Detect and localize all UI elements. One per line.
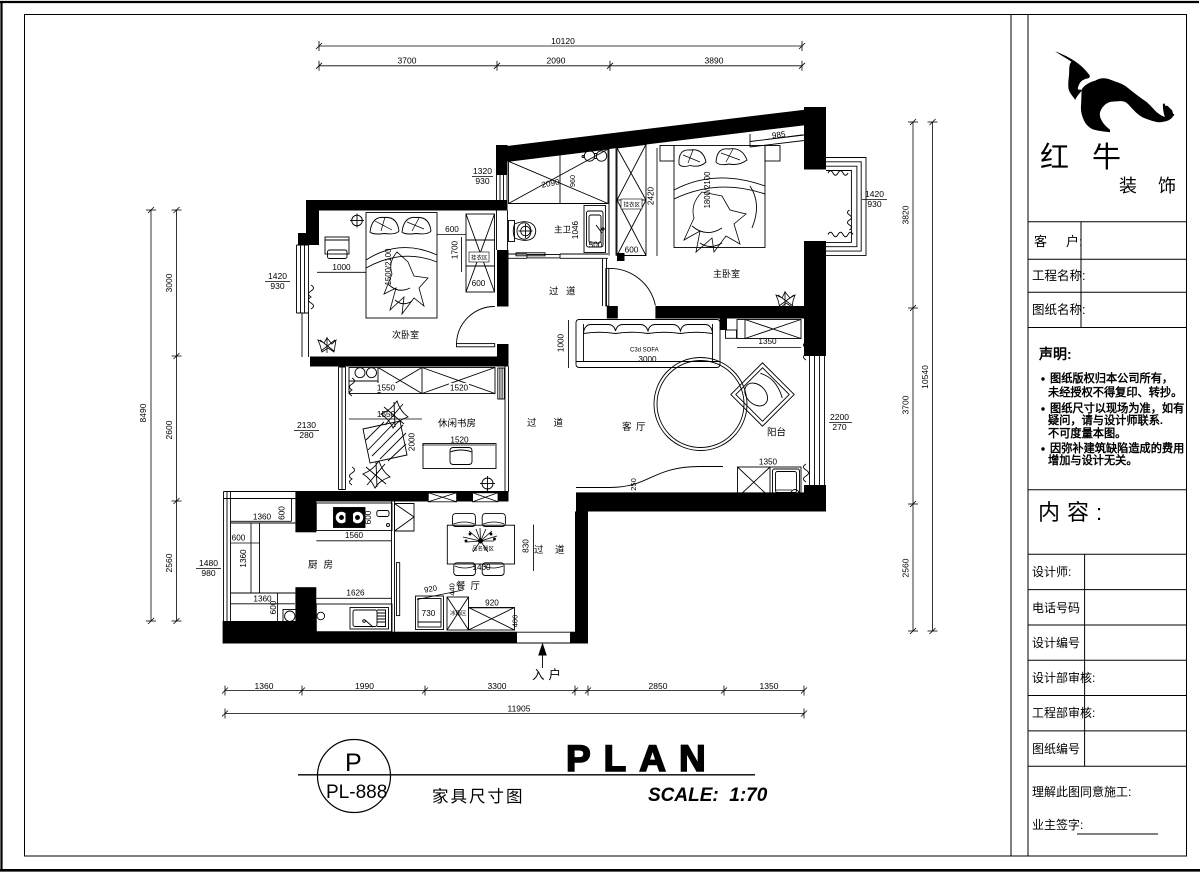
svg-text:2560: 2560 [164, 553, 174, 572]
svg-text:1420: 1420 [865, 189, 884, 199]
svg-text:1480: 1480 [199, 558, 218, 568]
svg-text:客厅: 客厅 [622, 421, 650, 433]
svg-text:工程名称:: 工程名称: [1032, 268, 1085, 283]
svg-text:1990: 1990 [355, 681, 374, 691]
svg-text:休闲书房: 休闲书房 [438, 418, 476, 430]
svg-text:2560: 2560 [901, 558, 911, 577]
svg-text:1360: 1360 [253, 513, 272, 522]
svg-text:980: 980 [201, 568, 215, 578]
svg-text:品名餐区: 品名餐区 [472, 545, 495, 553]
svg-text:主卫: 主卫 [554, 225, 572, 235]
svg-text:过道: 过道 [534, 544, 576, 556]
svg-text:设计师:: 设计师: [1032, 565, 1071, 579]
svg-text:C3d SOFA: C3d SOFA [630, 348, 659, 354]
svg-text:600: 600 [269, 600, 278, 614]
svg-text:PLAN: PLAN [566, 738, 719, 779]
svg-text:2090: 2090 [541, 177, 561, 189]
svg-text:增加与设计无关。: 增加与设计无关。 [1048, 453, 1138, 467]
svg-text:挂衣区: 挂衣区 [624, 201, 641, 209]
svg-text:1400: 1400 [472, 563, 491, 572]
svg-text:设计部审核:: 设计部审核: [1032, 670, 1095, 685]
svg-text:理解此图同意施工:: 理解此图同意施工: [1032, 784, 1131, 799]
svg-text:600: 600 [232, 534, 246, 543]
svg-text:过道: 过道 [549, 286, 583, 298]
svg-text:1350: 1350 [759, 458, 778, 467]
svg-text:1800/2100: 1800/2100 [703, 171, 712, 209]
svg-text:1520: 1520 [450, 384, 469, 393]
svg-text:阳台: 阳台 [767, 427, 786, 439]
svg-text:1500/2100: 1500/2100 [384, 248, 393, 286]
svg-text:830: 830 [522, 539, 531, 553]
svg-text:图纸编号: 图纸编号 [1032, 741, 1080, 756]
svg-text:1550: 1550 [377, 410, 396, 419]
svg-text:440: 440 [448, 583, 457, 596]
svg-text:2200: 2200 [830, 412, 849, 422]
svg-text:920: 920 [485, 599, 499, 608]
svg-text:1046: 1046 [571, 220, 580, 239]
svg-text:270: 270 [832, 422, 846, 432]
svg-text:3000: 3000 [164, 273, 174, 292]
svg-text:不可度量本图。: 不可度量本图。 [1048, 426, 1126, 440]
svg-text:1420: 1420 [268, 271, 287, 281]
svg-text:2000: 2000 [408, 432, 417, 451]
svg-text:声明:: 声明: [1038, 346, 1072, 362]
svg-text:930: 930 [270, 281, 284, 291]
svg-text:2090: 2090 [547, 56, 566, 66]
svg-text:装饰: 装饰 [1119, 176, 1197, 196]
svg-text:250: 250 [629, 478, 638, 491]
svg-text:1000: 1000 [332, 263, 351, 272]
svg-text:1360: 1360 [255, 681, 274, 691]
svg-text:8490: 8490 [138, 403, 148, 422]
svg-text:2130: 2130 [297, 420, 316, 430]
svg-text:PL-888: PL-888 [326, 782, 387, 803]
svg-text:500: 500 [589, 241, 603, 250]
svg-text:P: P [345, 749, 362, 777]
svg-text:过道: 过道 [527, 417, 580, 429]
svg-text:1520: 1520 [450, 436, 469, 445]
svg-text:930: 930 [475, 176, 489, 186]
svg-text:2600: 2600 [164, 420, 174, 439]
svg-text:图纸名称:: 图纸名称: [1032, 302, 1085, 317]
svg-text:业主签字:: 业主签字: [1032, 817, 1083, 832]
svg-text:3890: 3890 [705, 56, 724, 66]
svg-text:600: 600 [364, 510, 373, 524]
svg-text:未经授权不得复印、转抄。: 未经授权不得复印、转抄。 [1047, 385, 1182, 399]
svg-text:内容:: 内容: [1038, 500, 1109, 525]
svg-text:920: 920 [423, 583, 438, 594]
svg-text:1000: 1000 [557, 333, 566, 352]
svg-text:图纸版权归本公司所有，: 图纸版权归本公司所有， [1050, 371, 1173, 385]
svg-text:3300: 3300 [488, 681, 507, 691]
svg-text:1626: 1626 [346, 589, 365, 598]
svg-text:600: 600 [472, 279, 486, 288]
svg-text:主卧室: 主卧室 [713, 268, 740, 279]
svg-text:3700: 3700 [398, 56, 417, 66]
svg-text:因弥补建筑缺陷造成的费用: 因弥补建筑缺陷造成的费用 [1050, 441, 1184, 455]
svg-text:设计编号: 设计编号 [1032, 635, 1080, 650]
svg-text:家具尺寸图: 家具尺寸图 [432, 787, 525, 806]
svg-text:1350: 1350 [758, 337, 777, 346]
svg-text:600: 600 [278, 506, 287, 520]
svg-text:入户: 入户 [532, 667, 565, 682]
svg-text:疑问，请与设计师联系.: 疑问，请与设计师联系. [1048, 413, 1163, 427]
svg-text:3700: 3700 [901, 395, 911, 414]
svg-text:红牛: 红牛 [1040, 141, 1144, 174]
svg-text:厨房: 厨房 [308, 559, 339, 571]
svg-text:SCALE: 1:70: SCALE: 1:70 [648, 785, 768, 806]
svg-text:10540: 10540 [920, 365, 930, 389]
svg-text:400: 400 [511, 615, 520, 628]
svg-text:600: 600 [445, 225, 459, 234]
svg-text:次卧室: 次卧室 [392, 329, 419, 340]
svg-text:工程部审核:: 工程部审核: [1032, 705, 1095, 720]
svg-text:1350: 1350 [760, 681, 779, 691]
svg-text:11905: 11905 [507, 704, 530, 714]
svg-text:冰箱区: 冰箱区 [450, 609, 467, 617]
svg-text:1700: 1700 [451, 240, 460, 259]
svg-text:图纸尺寸以现场为准，如有: 图纸尺寸以现场为准，如有 [1050, 401, 1184, 415]
svg-text:电话号码: 电话号码 [1032, 601, 1080, 615]
svg-text:1560: 1560 [345, 531, 364, 540]
svg-text:960: 960 [568, 175, 577, 187]
svg-text:600: 600 [625, 246, 639, 255]
svg-text:1360: 1360 [239, 549, 248, 568]
svg-text:3820: 3820 [901, 205, 911, 224]
svg-text:挂衣区: 挂衣区 [471, 254, 488, 262]
svg-text:1320: 1320 [473, 166, 492, 176]
svg-text:10120: 10120 [551, 36, 575, 46]
svg-text:客户:: 客户: [1034, 234, 1083, 249]
svg-text:730: 730 [422, 609, 436, 618]
svg-text:280: 280 [299, 430, 313, 440]
svg-text:2850: 2850 [649, 681, 668, 691]
svg-text:930: 930 [867, 199, 881, 209]
svg-text:1550: 1550 [377, 384, 396, 393]
svg-text:3000: 3000 [638, 355, 657, 364]
svg-text:2420: 2420 [647, 186, 656, 205]
